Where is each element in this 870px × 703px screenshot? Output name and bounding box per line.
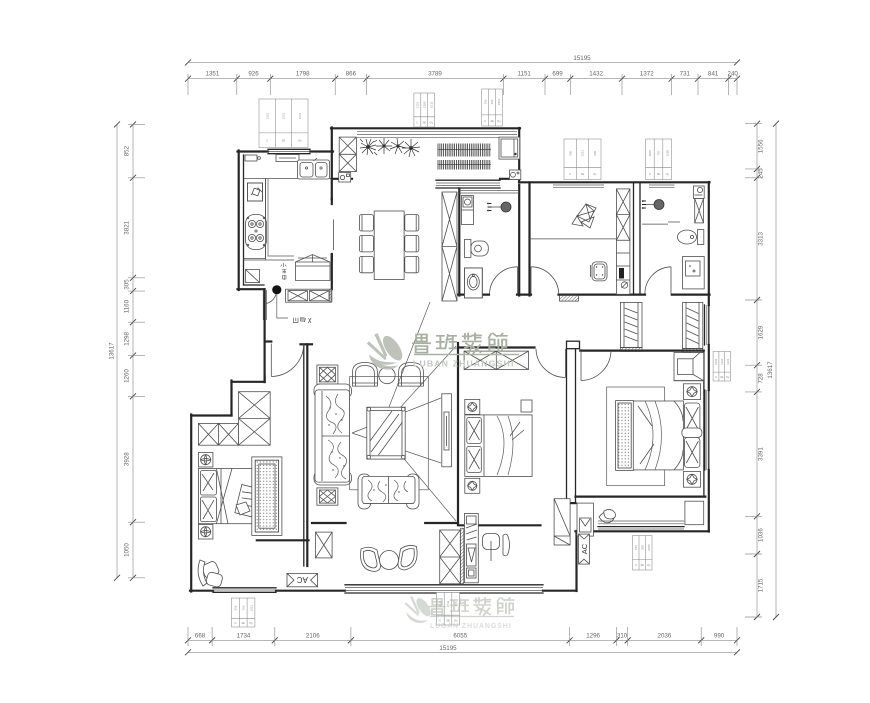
svg-text:C: C [715, 375, 717, 379]
svg-text:766: 766 [483, 99, 487, 104]
svg-text:Oy: Oy [726, 375, 730, 379]
svg-text:1121: 1121 [265, 113, 269, 120]
svg-text:1715: 1715 [758, 578, 765, 592]
svg-text:LUBAN ZHUANGSHI: LUBAN ZHUANGSHI [413, 359, 515, 369]
svg-text:3E: 3E [282, 139, 286, 143]
svg-text:AC: AC [297, 575, 308, 584]
svg-text:Oy: Oy [454, 619, 458, 623]
svg-text:1511: 1511 [429, 101, 433, 108]
svg-text:358: 358 [490, 99, 494, 104]
svg-text:1511: 1511 [581, 150, 585, 157]
svg-text:866: 866 [346, 71, 357, 78]
svg-text:C: C [234, 621, 236, 625]
svg-text:Oy: Oy [249, 621, 253, 625]
svg-text:Oy: Oy [429, 120, 433, 124]
svg-text:2180: 2180 [422, 101, 426, 108]
svg-text:310: 310 [617, 633, 628, 640]
svg-text:15195: 15195 [573, 55, 591, 62]
svg-text:1734: 1734 [237, 633, 251, 640]
svg-text:13617: 13617 [767, 361, 774, 379]
svg-text:668: 668 [195, 633, 206, 640]
svg-text:1556: 1556 [758, 139, 765, 153]
svg-text:3821: 3821 [124, 220, 131, 234]
svg-text:358: 358 [234, 605, 238, 610]
svg-text:240: 240 [728, 71, 739, 78]
svg-text:699: 699 [552, 71, 563, 78]
svg-text:1511: 1511 [282, 113, 286, 120]
svg-text:Oy: Oy [298, 139, 302, 143]
svg-text:3E: 3E [446, 619, 450, 623]
svg-text:1296: 1296 [586, 633, 600, 640]
svg-text:358: 358 [640, 545, 644, 550]
svg-text:305: 305 [124, 279, 131, 290]
svg-text:1798: 1798 [296, 71, 310, 78]
svg-text:15195: 15195 [439, 645, 457, 652]
svg-text:926: 926 [248, 71, 259, 78]
svg-text:3E: 3E [490, 119, 494, 123]
svg-text:1511: 1511 [497, 99, 501, 106]
svg-text:3E: 3E [657, 172, 661, 176]
svg-text:766: 766 [634, 545, 638, 550]
svg-text:1511: 1511 [446, 600, 450, 607]
svg-text:C: C [569, 172, 571, 176]
svg-text:1511: 1511 [249, 605, 253, 612]
svg-text:766: 766 [242, 605, 246, 610]
svg-text:3391: 3391 [758, 447, 765, 461]
svg-text:841: 841 [708, 71, 719, 78]
svg-text:1036: 1036 [758, 528, 765, 542]
svg-text:852: 852 [124, 145, 131, 156]
svg-text:C: C [266, 139, 268, 143]
svg-text:3313: 3313 [758, 231, 765, 245]
svg-text:728: 728 [758, 373, 765, 384]
svg-text:1121: 1121 [720, 358, 724, 365]
svg-text:1151: 1151 [518, 71, 532, 78]
svg-text:990: 990 [714, 633, 725, 640]
svg-text:3E: 3E [581, 172, 585, 176]
svg-text:AC: AC [580, 543, 589, 554]
svg-text:1511: 1511 [298, 113, 302, 120]
svg-text:C: C [649, 172, 651, 176]
svg-text:Oy: Oy [593, 172, 597, 176]
svg-text:LUBAN ZHUANGSHI: LUBAN ZHUANGSHI [430, 623, 512, 630]
svg-text:2036: 2036 [658, 633, 672, 640]
svg-text:3789: 3789 [428, 71, 442, 78]
svg-text:1121: 1121 [726, 358, 730, 365]
svg-text:C: C [635, 563, 637, 567]
svg-text:245: 245 [758, 168, 765, 179]
svg-text:3E: 3E [422, 120, 426, 124]
svg-text:2106: 2106 [306, 633, 320, 640]
svg-text:1260: 1260 [124, 369, 131, 383]
svg-text:1629: 1629 [758, 325, 765, 339]
svg-text:3E: 3E [720, 375, 724, 379]
svg-text:766: 766 [657, 150, 661, 155]
svg-text:1298: 1298 [124, 331, 131, 345]
svg-text:731: 731 [680, 71, 691, 78]
svg-text:1432: 1432 [589, 71, 603, 78]
svg-text:1351: 1351 [206, 71, 220, 78]
svg-text:3928: 3928 [124, 452, 131, 466]
svg-text:900: 900 [568, 150, 572, 155]
svg-text:3E: 3E [241, 621, 245, 625]
svg-text:C: C [416, 120, 418, 124]
svg-text:2180: 2180 [665, 150, 669, 157]
svg-text:1511: 1511 [714, 358, 718, 365]
svg-text:Oy: Oy [647, 563, 651, 567]
svg-text:3E: 3E [640, 563, 644, 567]
svg-text:1372: 1372 [640, 71, 654, 78]
svg-text:2035: 2035 [648, 150, 652, 157]
svg-text:Oy: Oy [497, 119, 501, 123]
svg-text:C: C [439, 619, 441, 623]
svg-text:C: C [484, 119, 486, 123]
svg-text:Oy: Oy [665, 172, 669, 176]
svg-text:1121: 1121 [416, 101, 420, 108]
svg-text:2035: 2035 [647, 544, 651, 551]
svg-text:1160: 1160 [124, 299, 131, 313]
svg-text:900: 900 [593, 150, 597, 155]
svg-text:6055: 6055 [453, 633, 467, 640]
svg-text:1050: 1050 [124, 543, 131, 557]
svg-text:13617: 13617 [109, 342, 116, 360]
